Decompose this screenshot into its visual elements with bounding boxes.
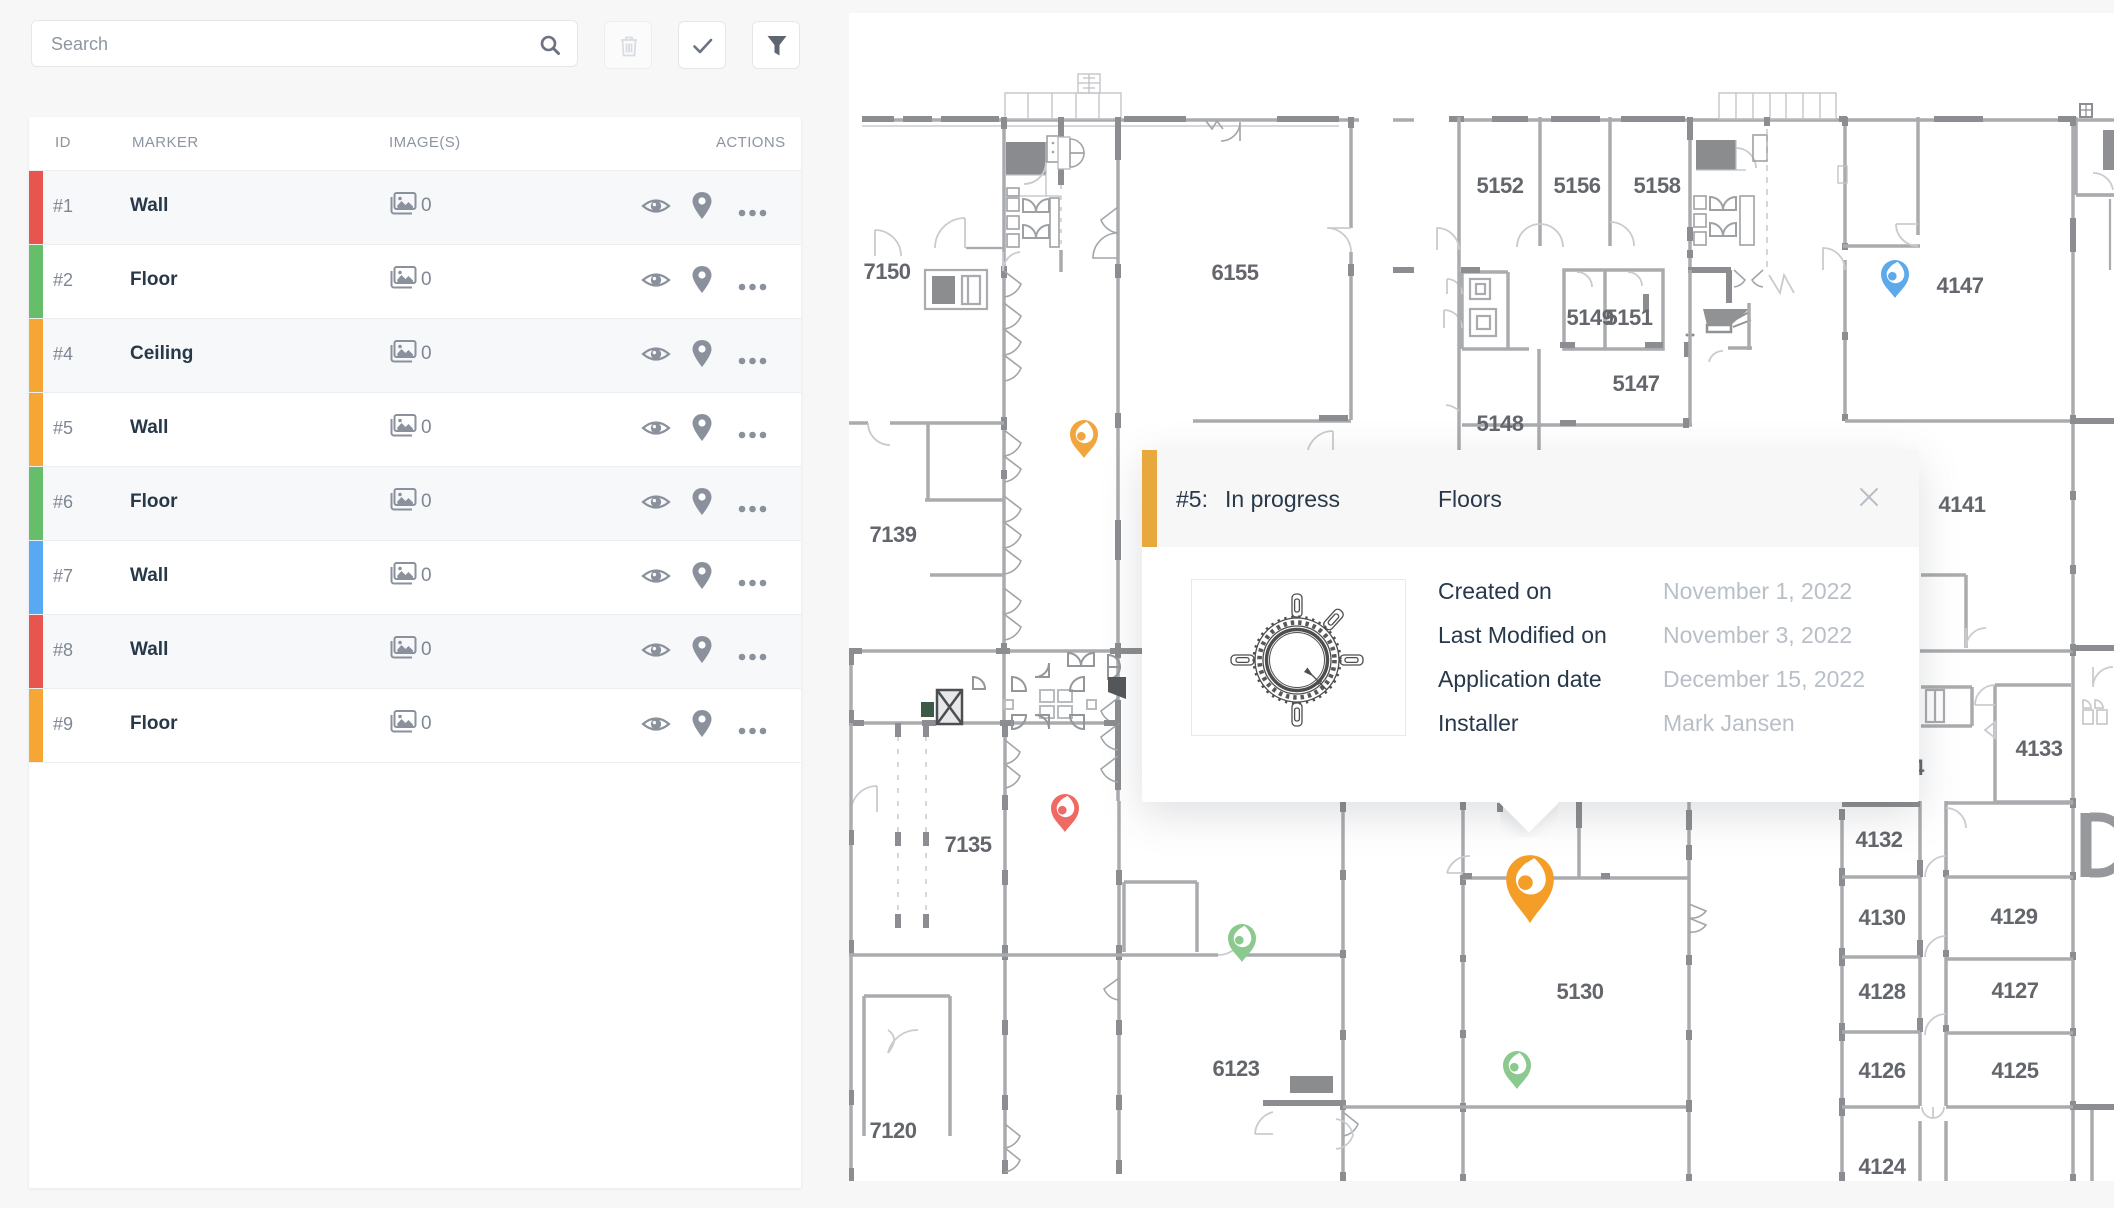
svg-text:7139: 7139 [870, 522, 917, 547]
svg-text:7150: 7150 [864, 259, 911, 284]
svg-text:6155: 6155 [1212, 260, 1259, 285]
svg-text:4126: 4126 [1859, 1058, 1906, 1083]
svg-text:5156: 5156 [1554, 173, 1601, 198]
svg-text:4141: 4141 [1939, 492, 1986, 517]
svg-text:5152: 5152 [1477, 173, 1524, 198]
svg-text:5147: 5147 [1613, 371, 1660, 396]
svg-text:5158: 5158 [1634, 173, 1681, 198]
svg-text:4129: 4129 [1991, 904, 2038, 929]
svg-text:7120: 7120 [870, 1118, 917, 1143]
svg-text:5148: 5148 [1477, 411, 1524, 436]
svg-text:4127: 4127 [1992, 978, 2039, 1003]
svg-text:4125: 4125 [1992, 1058, 2039, 1083]
svg-text:4147: 4147 [1937, 273, 1984, 298]
svg-text:4124: 4124 [1859, 1154, 1907, 1179]
svg-text:5130: 5130 [1557, 979, 1604, 1004]
svg-text:4130: 4130 [1859, 905, 1906, 930]
svg-text:4128: 4128 [1859, 979, 1906, 1004]
svg-text:5151: 5151 [1606, 305, 1653, 330]
svg-text:4132: 4132 [1856, 827, 1903, 852]
svg-text:6123: 6123 [1213, 1056, 1260, 1081]
svg-text:4133: 4133 [2016, 736, 2063, 761]
svg-text:7135: 7135 [945, 832, 992, 857]
